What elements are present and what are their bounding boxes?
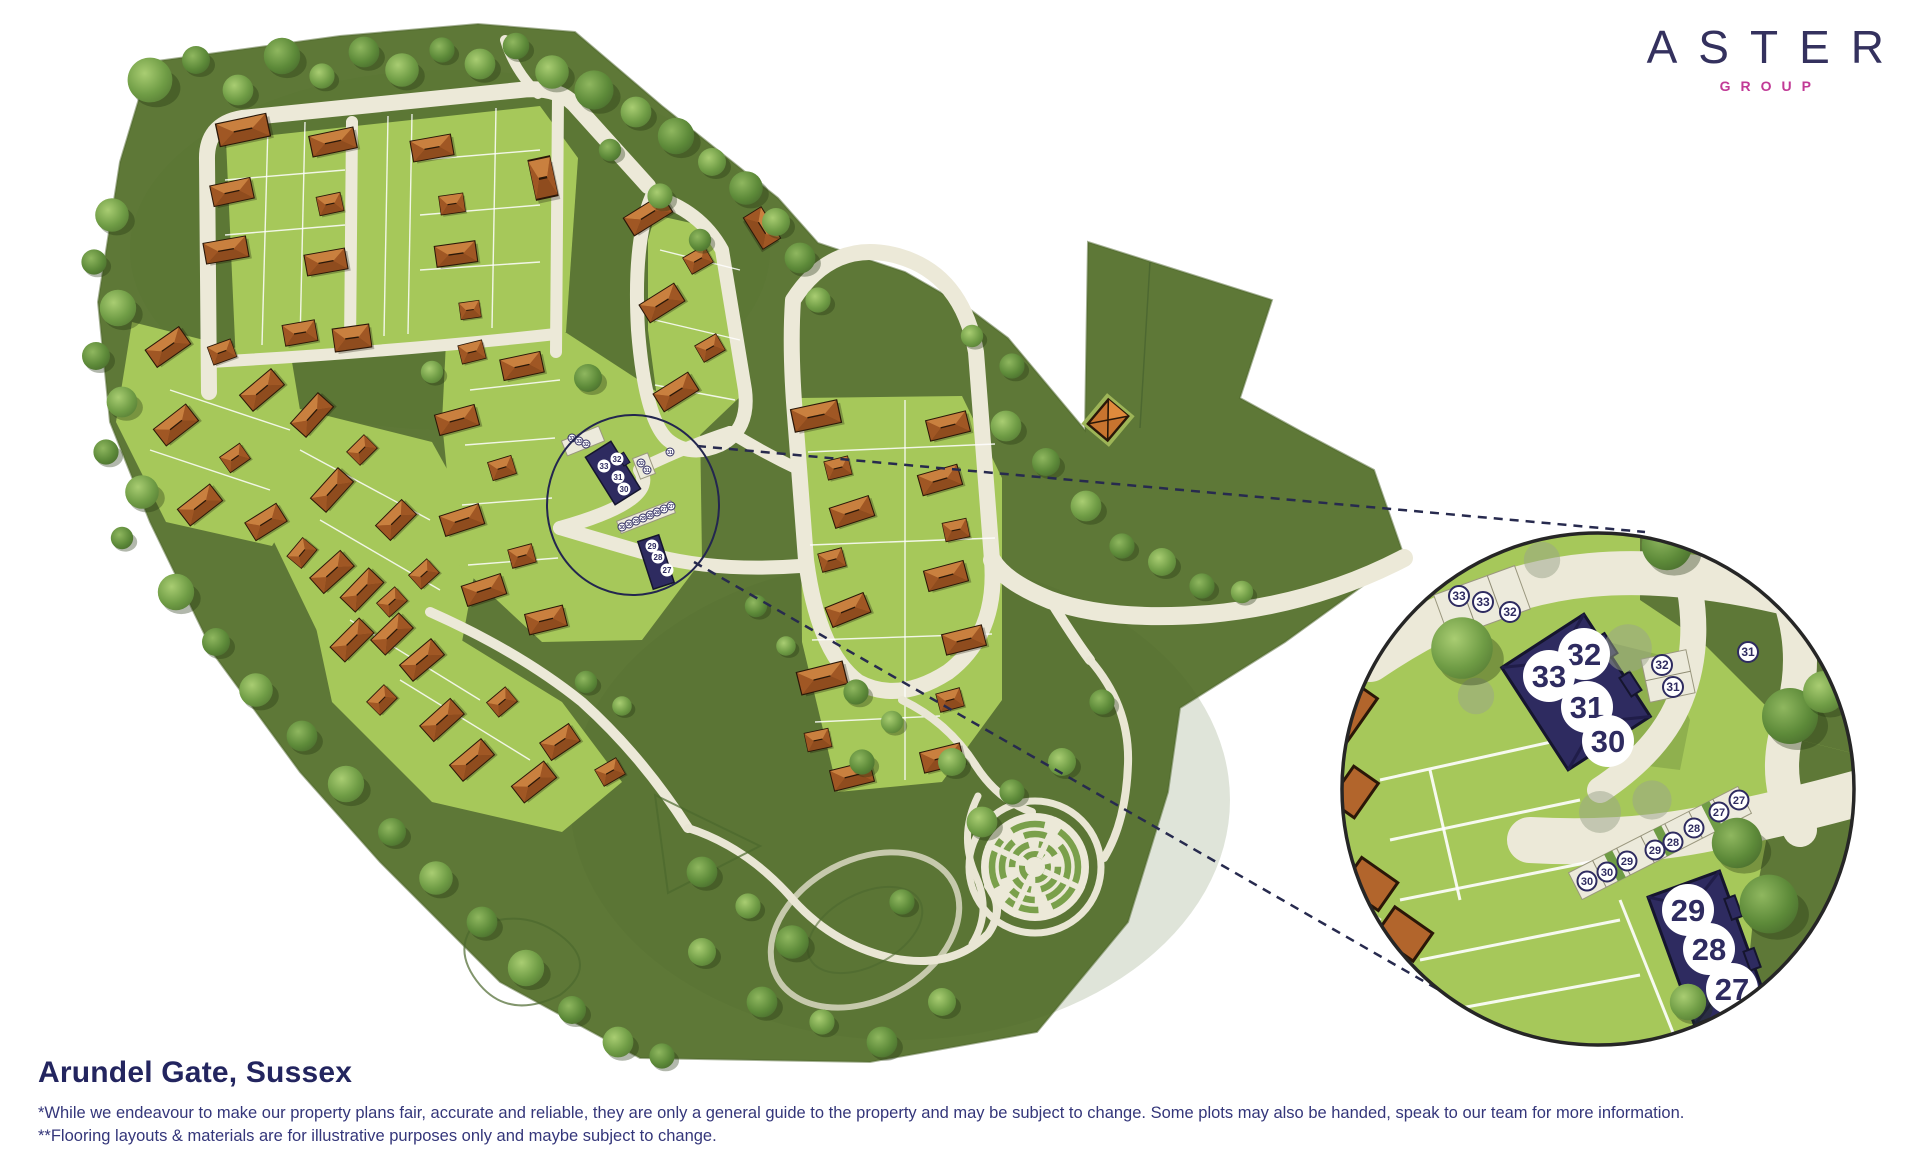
svg-text:30: 30 bbox=[1591, 724, 1625, 759]
aster-group-logo: ASTER GROUP bbox=[1647, 24, 1884, 94]
detail-road-badge: 31 bbox=[1738, 642, 1758, 662]
plot-badge-27[interactable]: 27 bbox=[661, 564, 674, 577]
svg-text:31: 31 bbox=[614, 473, 623, 482]
detail-parking-badge: 27 bbox=[1730, 791, 1749, 810]
svg-text:32: 32 bbox=[1503, 605, 1517, 619]
detail-parking-badge: 30 bbox=[1578, 872, 1597, 891]
svg-text:32: 32 bbox=[613, 455, 622, 464]
svg-text:29: 29 bbox=[1649, 845, 1661, 857]
detail-parking-badge: 32 bbox=[1500, 602, 1520, 622]
svg-text:28: 28 bbox=[1688, 823, 1700, 835]
svg-text:32: 32 bbox=[583, 442, 589, 448]
logo-brand-text: ASTER bbox=[1647, 24, 1905, 70]
detail-plot-badge-30[interactable]: 30 bbox=[1582, 715, 1634, 767]
svg-text:33: 33 bbox=[600, 462, 609, 471]
parking-badge: 32 bbox=[637, 459, 645, 467]
svg-text:29: 29 bbox=[1671, 893, 1705, 928]
svg-text:29: 29 bbox=[1621, 856, 1633, 868]
detail-view: 33 33 32 32 31 31 30 30 29 29 28 28 27 2… bbox=[1315, 520, 1880, 1050]
masterplan-svg: 32 33 31 30 29 28 27 33 33 32 32 31 31 3… bbox=[0, 0, 1920, 1161]
detail-parking-badge: 28 bbox=[1685, 819, 1704, 838]
detail-parking-badge: 33 bbox=[1449, 586, 1469, 606]
svg-text:32: 32 bbox=[1655, 658, 1669, 672]
svg-text:28: 28 bbox=[654, 510, 660, 516]
svg-text:32: 32 bbox=[638, 461, 644, 467]
detail-parking-badge: 29 bbox=[1618, 852, 1637, 871]
plot-badge-33[interactable]: 33 bbox=[598, 460, 611, 473]
detail-parking-badge: 28 bbox=[1664, 833, 1683, 852]
svg-text:27: 27 bbox=[1715, 972, 1749, 1007]
svg-text:28: 28 bbox=[1667, 837, 1679, 849]
plot-badge-31[interactable]: 31 bbox=[612, 471, 625, 484]
svg-text:30: 30 bbox=[1601, 867, 1613, 879]
svg-text:27: 27 bbox=[1733, 795, 1745, 807]
plot-badge-30[interactable]: 30 bbox=[618, 483, 631, 496]
page: 32 33 31 30 29 28 27 33 33 32 32 31 31 3… bbox=[0, 0, 1920, 1161]
detail-parking-badge: 31 bbox=[1663, 677, 1683, 697]
logo-sub-text: GROUP bbox=[1647, 78, 1894, 94]
svg-text:33: 33 bbox=[1476, 595, 1490, 609]
svg-text:31: 31 bbox=[1666, 680, 1680, 694]
plot-badge-28[interactable]: 28 bbox=[652, 551, 665, 564]
svg-text:31: 31 bbox=[644, 468, 650, 474]
svg-text:30: 30 bbox=[619, 525, 625, 531]
parking-badge: 31 bbox=[666, 448, 674, 456]
plot-badge-29[interactable]: 29 bbox=[646, 540, 659, 553]
svg-text:28: 28 bbox=[654, 553, 663, 562]
svg-text:31: 31 bbox=[1741, 645, 1755, 659]
svg-text:33: 33 bbox=[1532, 659, 1566, 694]
svg-text:33: 33 bbox=[576, 439, 582, 445]
disclaimer-line-1: *While we endeavour to make our property… bbox=[38, 1102, 1898, 1125]
detail-parking-badge: 32 bbox=[1652, 655, 1672, 675]
svg-text:30: 30 bbox=[1581, 876, 1593, 888]
detail-parking-badge: 33 bbox=[1473, 592, 1493, 612]
svg-text:30: 30 bbox=[626, 522, 632, 528]
svg-text:28: 28 bbox=[647, 513, 653, 519]
svg-text:31: 31 bbox=[667, 450, 673, 456]
footer: Arundel Gate, Sussex *While we endeavour… bbox=[38, 1056, 1898, 1148]
detail-parking-badge: 30 bbox=[1598, 863, 1617, 882]
svg-text:29: 29 bbox=[633, 519, 639, 525]
svg-text:27: 27 bbox=[661, 507, 667, 513]
svg-text:27: 27 bbox=[663, 566, 672, 575]
parking-badge: 32 bbox=[582, 440, 590, 448]
svg-text:27: 27 bbox=[668, 504, 674, 510]
svg-text:29: 29 bbox=[640, 516, 646, 522]
plot-badge-32[interactable]: 32 bbox=[611, 453, 624, 466]
svg-text:29: 29 bbox=[648, 542, 657, 551]
detail-parking-badge: 29 bbox=[1646, 841, 1665, 860]
svg-text:30: 30 bbox=[620, 485, 629, 494]
page-title: Arundel Gate, Sussex bbox=[38, 1056, 1898, 1090]
disclaimer-line-2: **Flooring layouts & materials are for i… bbox=[38, 1125, 1898, 1148]
svg-text:28: 28 bbox=[1692, 932, 1726, 967]
svg-text:27: 27 bbox=[1713, 807, 1725, 819]
parking-badge: 27 bbox=[667, 502, 675, 510]
parking-badge: 31 bbox=[643, 466, 651, 474]
svg-text:33: 33 bbox=[1452, 589, 1466, 603]
detail-parking-badge: 27 bbox=[1710, 803, 1729, 822]
